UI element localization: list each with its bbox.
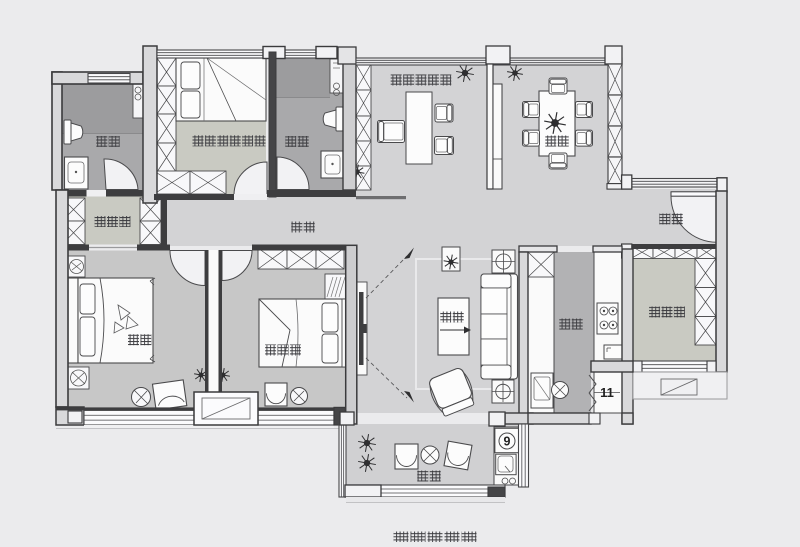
svg-text:11: 11: [600, 385, 614, 400]
svg-text:9: 9: [504, 435, 511, 449]
